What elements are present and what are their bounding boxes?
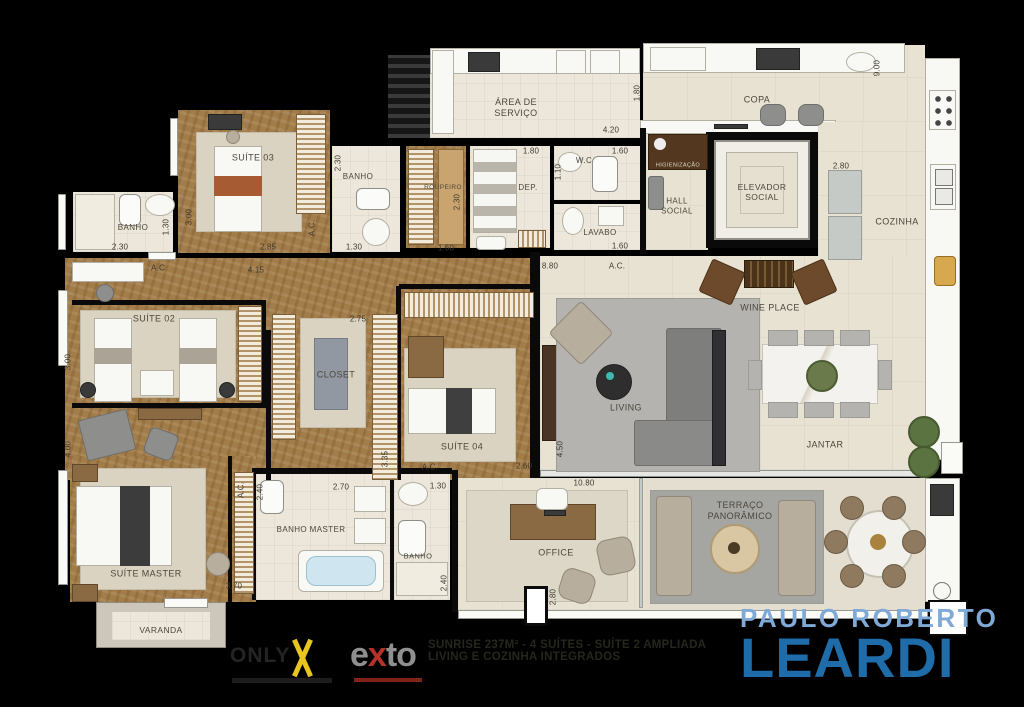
dimension-label: 1.60: [612, 242, 628, 251]
dimension-label: 1.60: [612, 147, 628, 156]
dimension-label: 4.15: [248, 266, 264, 275]
dimension-label: 2.30: [112, 243, 128, 252]
only-logo-x-icon: [282, 638, 322, 678]
dimension-label: 9.00: [873, 60, 882, 76]
dimension-label: 4.20: [603, 126, 619, 135]
label-varanda: VARANDA: [139, 625, 182, 635]
tagline-line1: SUNRISE 237M² - 4 SUÍTES - SUÍTE 2 AMPLI…: [428, 640, 758, 652]
dimension-label: 1.60: [438, 244, 454, 253]
label-wc: W.C: [576, 156, 592, 166]
dimension-label: 3.00: [64, 354, 73, 370]
dimension-label: 2.80: [833, 162, 849, 171]
only-logo-subtext-bar: [232, 678, 332, 683]
label-suite-master: SUÍTE MASTER: [110, 569, 181, 580]
label-suite02: SUÍTE 02: [133, 314, 175, 325]
door-office-terrace: [524, 586, 548, 626]
dimension-label: 3.35: [381, 451, 390, 467]
floor-plan: ÁREA DE SERVIÇO COPA COZINHA HALL SOCIAL…: [0, 0, 1024, 707]
exto-letter-x: x: [368, 636, 386, 674]
dimension-label: 10.80: [573, 479, 594, 488]
dimension-label: 2.40: [440, 575, 449, 591]
label-banho-suite02: BANHO: [118, 223, 148, 233]
ac-label: A.C: [151, 264, 165, 273]
label-banho-suite03: BANHO: [343, 172, 373, 182]
tagline-line2: LIVING E COZINHA INTEGRADOS: [428, 652, 758, 664]
dimension-label: 4.50: [556, 441, 565, 457]
label-area-servico: ÁREA DE SERVIÇO: [494, 97, 537, 119]
exto-letter: e: [350, 636, 368, 674]
dimension-label: 1.30: [346, 243, 362, 252]
dimension-label: 4.00: [64, 441, 73, 457]
label-suite04: SUÍTE 04: [441, 442, 483, 453]
label-living: LIVING: [610, 403, 642, 414]
label-terraco: TERRAÇO PANORÂMICO: [708, 500, 773, 522]
tagline: SUNRISE 237M² - 4 SUÍTES - SUÍTE 2 AMPLI…: [428, 640, 758, 663]
dimension-label: 2.40: [256, 484, 265, 500]
label-wine-place: WINE PLACE: [740, 303, 800, 314]
label-dep: DEP.: [518, 183, 537, 193]
label-copa: COPA: [744, 95, 770, 106]
label-office: OFFICE: [538, 548, 573, 559]
dimension-label: 1.30: [162, 219, 171, 235]
label-banho-suite04: BANHO: [404, 552, 433, 561]
label-elevador: ELEVADOR SOCIAL: [738, 182, 787, 202]
only-logo: ONLY: [230, 638, 340, 686]
ac-label: A.C.: [237, 482, 246, 498]
dimension-label: 3.00: [185, 209, 194, 225]
dimension-label: 1.10: [554, 164, 563, 180]
dimension-label: 2.80: [549, 589, 558, 605]
dimension-label: 2.30: [453, 194, 462, 210]
dimension-label: 2.60: [516, 462, 532, 471]
label-jantar: JANTAR: [807, 440, 844, 451]
ac-label: A.C.: [422, 463, 438, 472]
label-closet: CLOSET: [317, 370, 355, 381]
dimension-label: 2.85: [260, 243, 276, 252]
dimension-label: 1.80: [633, 85, 642, 101]
label-roupeiro: ROUPEIRO: [424, 184, 462, 192]
exto-logo: exto: [350, 636, 430, 686]
leardi-logo-main: LEARDI: [740, 630, 1024, 686]
ac-label: A.C.: [609, 262, 625, 271]
label-higienizacao: HIGIENIZAÇÃO: [656, 163, 700, 170]
dimension-label: 3.70: [226, 582, 242, 591]
dimension-label: 1.30: [430, 482, 446, 491]
leardi-logo: PAULO ROBERTO LEARDI: [740, 604, 1024, 686]
exto-subtext-bar: [354, 678, 422, 682]
dimension-label: 1.80: [523, 147, 539, 156]
exto-letter: t: [386, 636, 396, 674]
label-lavabo: LAVABO: [583, 228, 616, 238]
label-suite03: SUÍTE 03: [232, 153, 274, 164]
ac-label: A.C.: [308, 220, 317, 236]
dimension-label: 2.75: [350, 315, 366, 324]
dimension-label: 2.30: [334, 155, 343, 171]
label-hall-social: HALL SOCIAL: [661, 196, 693, 215]
dimension-label: 2.70: [333, 483, 349, 492]
exto-letter: o: [396, 636, 416, 674]
label-cozinha: COZINHA: [875, 217, 918, 228]
dimension-label: 8.80: [542, 262, 558, 271]
label-banho-master: BANHO MASTER: [277, 525, 346, 535]
